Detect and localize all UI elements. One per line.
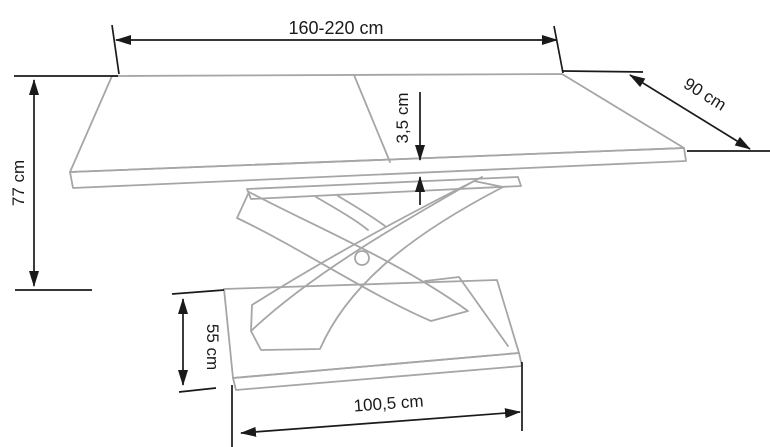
pedestal-leg-a: [237, 192, 468, 321]
dimension-top-thickness: 3,5 cm: [393, 92, 420, 205]
base-plate-edge: [233, 353, 522, 390]
dimension-base-depth: 55 cm: [172, 290, 224, 392]
extension-line: [554, 26, 563, 73]
tabletop-edge: [70, 148, 686, 188]
extension-line: [112, 25, 119, 74]
dimension-label: 77 cm: [9, 160, 28, 206]
pedestal-leg-a-depth-line: [316, 197, 368, 230]
dimension-label: 90 cm: [680, 74, 729, 115]
pedestal-leg-b: [251, 181, 503, 350]
table-drawing: [70, 74, 686, 390]
pedestal-leg-b-depth-cap: [251, 305, 252, 331]
dimension-table-height: 77 cm: [9, 76, 118, 290]
extension-line: [563, 71, 643, 72]
dimension-table-length: 160-220 cm: [112, 18, 563, 74]
top-support-bracket: [247, 177, 521, 199]
dimension-table-depth: 90 cm: [563, 71, 770, 151]
dimension-label: 3,5 cm: [393, 92, 412, 143]
tabletop-leaf-split-line: [354, 75, 390, 162]
extension-line: [172, 290, 224, 294]
tabletop-surface: [70, 74, 684, 172]
dimension-label: 160-220 cm: [288, 18, 383, 38]
extension-line: [179, 388, 216, 392]
dimension-line: [241, 412, 520, 433]
pivot-bolt: [355, 251, 369, 265]
dimension-label: 100,5 cm: [353, 391, 424, 415]
pedestal-leg-a-depth-line: [338, 196, 385, 226]
table-dimensions-diagram: 160-220 cm 90 cm 77 cm 3,5 cm 55 cm 100,…: [0, 0, 770, 447]
dimension-label: 55 cm: [203, 324, 222, 370]
